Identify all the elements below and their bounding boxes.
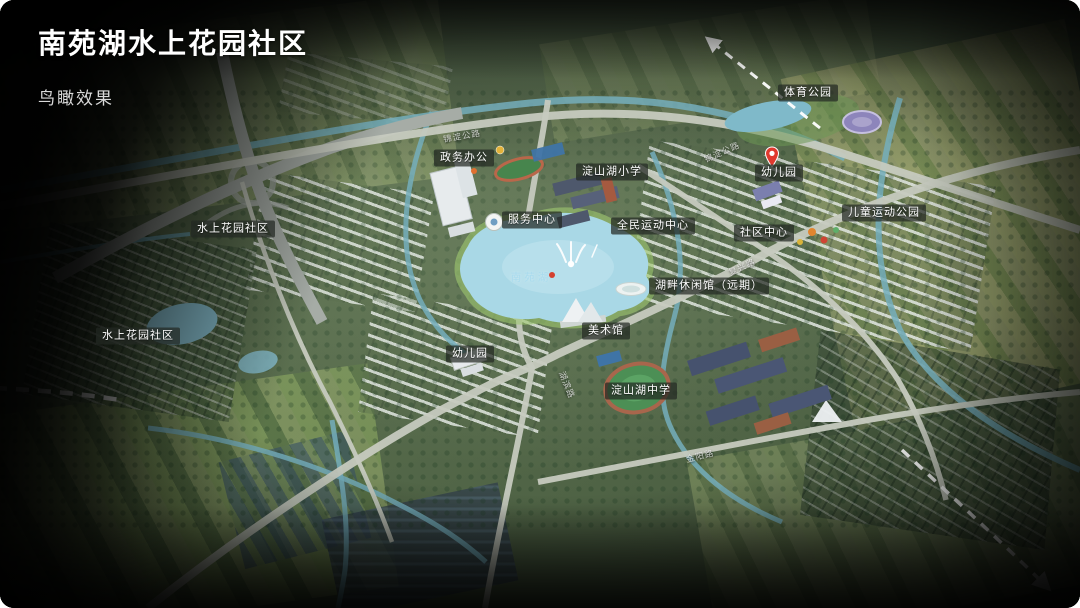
aerial-scene: 南苑湖 体育公园幼儿园儿童运动公园政务办公淀山湖小学服务中心全民运动中心社区中心… [0,0,1080,608]
slide-header: 南苑湖水上花园社区 鸟瞰效果 [38,22,308,109]
page-subtitle: 鸟瞰效果 [38,84,308,109]
lake-name-label: 南苑湖 [511,270,552,285]
road-label-2: 复兴路 [727,256,758,279]
road-label-1: 锦淀公路 [702,139,742,165]
map-label-kindergarten-east: 幼儿园 [755,165,803,182]
map-label-government-office: 政务办公 [434,150,494,167]
slide: 南苑湖 体育公园幼儿园儿童运动公园政务办公淀山湖小学服务中心全民运动中心社区中心… [0,0,1080,608]
map-label-water-garden-south: 水上花园社区 [96,328,180,345]
map-label-art-museum: 美术馆 [582,323,630,340]
road-label-4: 金阳路 [685,447,716,466]
road-label-0: 锦淀公路 [442,127,482,145]
map-label-water-garden-north: 水上花园社区 [191,221,275,238]
page-title: 南苑湖水上花园社区 [38,22,308,62]
map-label-dianshanhu-middle: 淀山湖中学 [605,383,677,400]
map-label-kindergarten-south: 幼儿园 [446,346,494,363]
map-label-community-center: 社区中心 [734,225,794,242]
map-label-children-sports-park: 儿童运动公园 [842,205,926,222]
map-label-lakeside-leisure-hall: 湖畔休闲馆（远期） [649,278,769,295]
map-label-public-sports-center: 全民运动中心 [611,218,695,235]
map-label-dianshanhu-primary: 淀山湖小学 [576,164,648,181]
map-label-sports-park: 体育公园 [778,85,838,102]
road-label-3: 湖滨路 [556,370,578,401]
map-label-service-center: 服务中心 [502,212,562,229]
